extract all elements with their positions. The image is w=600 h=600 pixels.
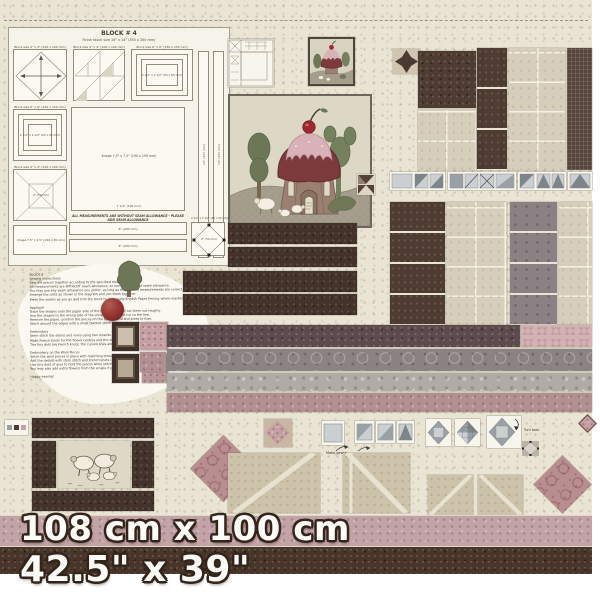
bias-lines	[228, 453, 320, 513]
sheet-subtitle: Finish block size 14" x 14" (350 x 350 m…	[9, 38, 229, 42]
grey-squares-column	[510, 202, 557, 325]
log-cabin-ring: 2 1/2" x 2 1/2" (65 x 65 mm)	[141, 59, 183, 91]
envelope-center-label: 2" (50 mm)	[14, 193, 68, 197]
diamond-center-label: 2" (50 mm)	[192, 237, 226, 241]
sheep-block-side	[132, 441, 154, 488]
pink-floral-fabric-row	[521, 325, 592, 347]
sheep-block-bottom-strip	[32, 491, 154, 511]
mauve-fabric-row	[167, 393, 592, 412]
mauve-fabric-square	[140, 352, 166, 372]
diamond-step-2	[455, 419, 480, 446]
berry-button-decoration	[101, 298, 124, 321]
diamond-step-3	[487, 416, 521, 448]
small-image-label: Image 7,5" x 2,5" (190 x 65 mm)	[14, 238, 68, 242]
sheep-embroidery-drawing	[58, 441, 130, 488]
beige-fabric-column	[447, 202, 507, 325]
image-template-dim: 7 1/2" (190 mm)	[72, 204, 186, 208]
brown-squares-column	[477, 48, 507, 170]
log-cabin-center-label: 2 1/2" x 2 1/2" (65 x 65 mm)	[20, 133, 60, 137]
hst-unit	[376, 421, 395, 443]
piecing-step-panel	[568, 172, 592, 190]
house-window	[288, 181, 294, 197]
pinwheel-block	[357, 174, 375, 195]
key-swatch	[7, 425, 12, 430]
block-layout-thumbnail	[228, 39, 274, 87]
tree-shape	[114, 260, 144, 298]
diamond-in-square-diagram	[13, 49, 67, 101]
brown-border-strip	[183, 271, 357, 292]
diamond-corner-template: 2" (50 mm)	[191, 222, 225, 256]
tan-pieced-rectangle	[228, 453, 320, 513]
diamond-step-panel	[426, 419, 451, 446]
brown-squares-column	[390, 202, 445, 325]
tan-pieced-rectangle	[343, 453, 410, 513]
piecing-units	[568, 172, 592, 190]
mini-log-cabin-block	[112, 354, 139, 383]
cupcake-applique-block	[228, 94, 372, 228]
cupcake-thumbnail	[308, 37, 355, 86]
diamond-in-square-drawing	[14, 50, 68, 102]
piecing-step-panel	[397, 421, 414, 443]
piecing-step-panel	[322, 421, 344, 445]
sheet-title: BLOCK # 4	[9, 30, 229, 37]
diamond-step-4	[522, 441, 539, 456]
hst-unit	[355, 421, 374, 443]
grey-rings-fabric-row	[167, 349, 592, 371]
triangle-grid-diagram	[73, 49, 125, 101]
bias-lines	[343, 453, 410, 513]
diamond-step-1	[426, 419, 451, 446]
diamond-step-4-drawing	[522, 441, 539, 456]
piecing-step-panel	[448, 172, 516, 190]
house-window	[324, 181, 330, 197]
quilt-panel-photo: BLOCK # 4 Finish block size 14" x 14" (3…	[0, 0, 600, 600]
mini-log-cabin-block	[112, 322, 139, 351]
beige-fabric-tiles	[418, 110, 476, 170]
envelope-diagram: 2" (50 mm)	[13, 169, 67, 221]
seam-allowance-note: ALL MEASUREMENTS ARE WITHOUT SEAM ALLOWA…	[69, 214, 187, 222]
piecing-step-panel	[376, 421, 395, 443]
piecing-units	[390, 172, 445, 190]
bias-lines	[478, 475, 523, 515]
geese-unit	[397, 421, 414, 443]
log-cabin-center-label: 2 1/2" x 2 1/2" (65 x 65 mm)	[142, 73, 182, 77]
small-diamond-block	[264, 419, 292, 447]
cupcake-applique-drawing	[230, 96, 370, 226]
light-paisley-fabric-row	[167, 373, 592, 391]
piecing-units	[518, 172, 566, 190]
strip-dimension: 8" (200 mm)	[118, 227, 137, 231]
cupcake-thumbnail-drawing	[310, 39, 353, 84]
beige-fabric-column	[559, 202, 592, 325]
small-diamond-inner	[265, 420, 289, 444]
sheep-embroidery-panel	[58, 441, 130, 488]
block-layout-drawing	[228, 39, 274, 87]
log-cabin-center: 2 1/2" x 2 1/2" (65 x 65 mm)	[146, 64, 178, 86]
cutting-dashed-line	[4, 20, 588, 21]
tan-pieced-rectangle	[478, 475, 523, 515]
mini-block-center	[116, 326, 135, 347]
image-template-label: Image 7,5" x 7,5" (190 x 190 mm)	[72, 154, 186, 158]
color-key-box	[5, 420, 28, 435]
log-cabin-diagram-2: 2 1/2" x 2 1/2" (65 x 65 mm)	[13, 109, 67, 161]
key-swatch	[14, 425, 19, 430]
diamond-step-panel	[455, 419, 480, 446]
long-strip-template: 8" (200 mm)	[69, 239, 187, 252]
small-image-template: Image 7,5" x 2,5" (190 x 65 mm)	[13, 225, 67, 255]
piecing-step-panel	[390, 172, 445, 190]
log-cabin-diagram-1: 2 1/2" x 2 1/2" (65 x 65 mm)	[131, 49, 193, 101]
log-cabin-ring: 2 1/2" x 2 1/2" (65 x 65 mm)	[136, 54, 188, 96]
dark-brown-fabric-square	[418, 51, 476, 108]
pinwheel-drawing	[357, 174, 375, 195]
pattern-sheet: BLOCK # 4 Finish block size 14" x 14" (3…	[8, 27, 230, 266]
diamond-step-panel	[487, 416, 521, 448]
bias-lines	[428, 475, 473, 515]
brown-border-strip	[228, 223, 357, 244]
log-cabin-center: 2 1/2" x 2 1/2" (65 x 65 mm)	[28, 124, 52, 146]
diagram-label: 2 1/2" x 2 1/2" (65 x 65 mm)	[191, 217, 225, 221]
triangle-grid-drawing	[74, 50, 126, 102]
strip-dimension: 8" (200 mm)	[118, 244, 137, 248]
strip-dimension: 14" (355 mm)	[202, 144, 206, 165]
strip-dimension: 14" (355 mm)	[217, 144, 221, 165]
panel-size-imperial: 42.5" x 39"	[20, 549, 250, 590]
log-cabin-ring: 2 1/2" x 2 1/2" (65 x 65 mm)	[23, 119, 57, 151]
pink-fabric-square	[140, 324, 166, 350]
tan-pieced-rectangle	[428, 475, 473, 515]
sheep-block-top-strip	[32, 418, 154, 438]
brown-border-strip	[228, 247, 357, 267]
log-cabin-ring: 2 1/2" x 2 1/2" (65 x 65 mm)	[18, 114, 62, 156]
brown-border-strip	[183, 294, 357, 315]
star-block	[393, 49, 420, 74]
turn-back-label: Turn back	[524, 428, 558, 432]
piecing-step-panel	[518, 172, 566, 190]
dark-plum-fabric-row	[167, 325, 520, 347]
panel-size-metric: 108 cm x 100 cm	[20, 509, 350, 549]
cherry	[303, 121, 315, 133]
long-strip-template: 8" (200 mm)	[69, 222, 187, 235]
tree-applique-decoration	[114, 260, 144, 298]
star-block-drawing	[393, 49, 420, 74]
sheep-block-side	[32, 441, 56, 488]
plain-square-unit	[322, 421, 344, 445]
image-area-template: Image 7,5" x 7,5" (190 x 190 mm) 7 1/2" …	[71, 107, 185, 211]
piecing-step-panel	[355, 421, 374, 443]
brown-grid-fabric-column	[567, 48, 592, 170]
beige-fabric-column	[509, 48, 565, 170]
mini-block-center	[116, 358, 135, 379]
key-swatch	[21, 425, 26, 430]
piecing-units	[448, 172, 516, 190]
